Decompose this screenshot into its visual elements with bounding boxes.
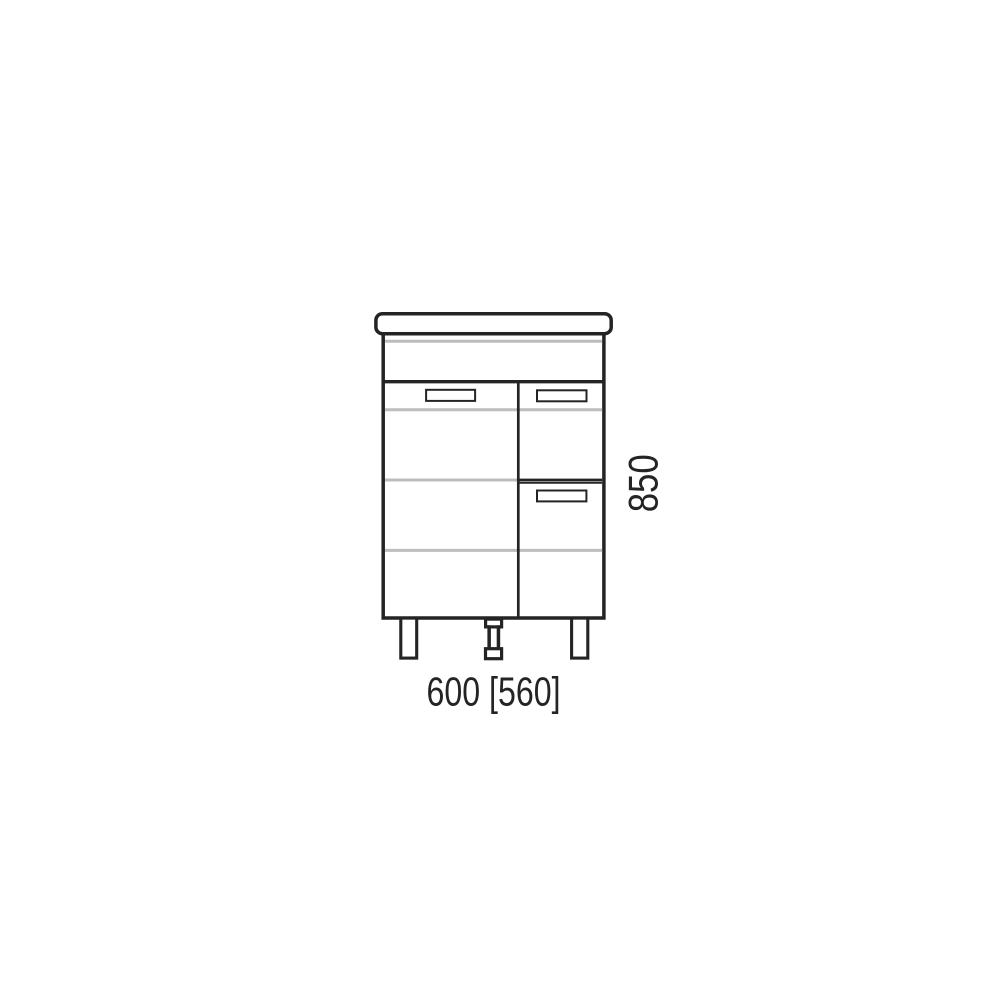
svg-text:850: 850 <box>619 454 666 512</box>
svg-text:600 [560]: 600 [560] <box>427 669 561 715</box>
